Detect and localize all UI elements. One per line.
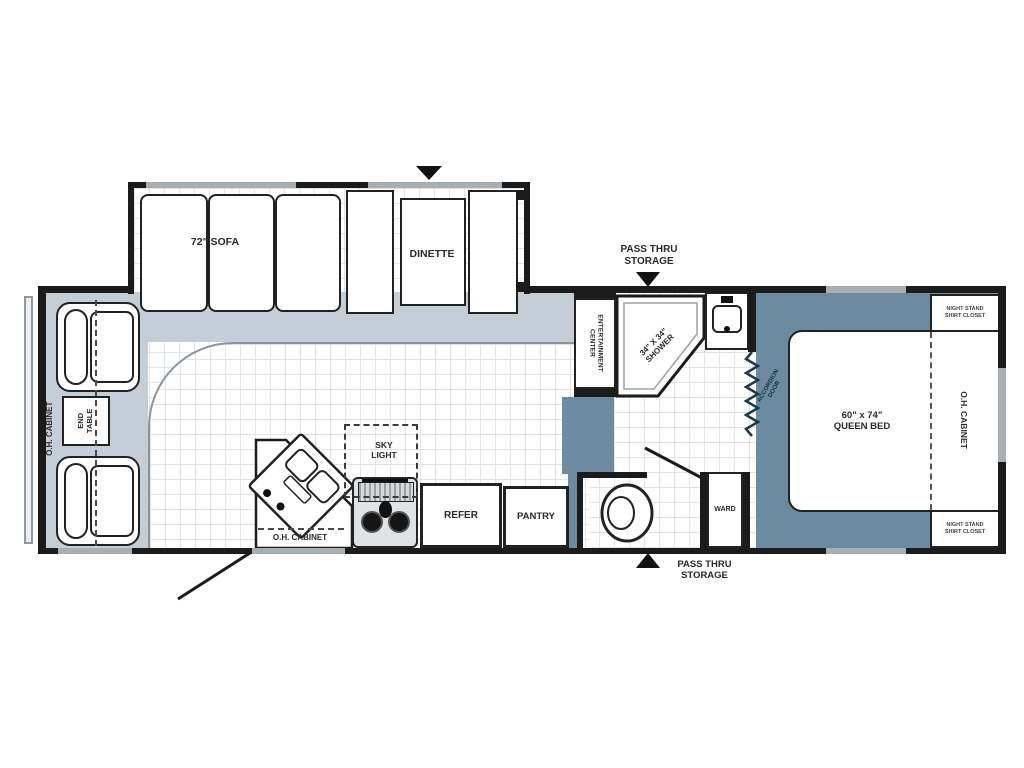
window-bedroom-bottom <box>826 548 906 554</box>
vanity-drain <box>724 326 730 332</box>
wall-ward-left <box>700 472 707 548</box>
recliner-chair <box>56 456 140 546</box>
wall-dinette-nub <box>516 282 526 292</box>
sofa-cushion <box>275 194 341 312</box>
oh-cabinet-dashline <box>258 528 344 530</box>
wall-top-left <box>38 286 134 293</box>
wall-ward-right <box>743 472 750 548</box>
ward-label: WARD <box>714 506 735 514</box>
pantry-label: PANTRY <box>517 511 555 522</box>
floorplan-canvas: REFER PANTRY WARD 60" x 74" QUEEN BED NI… <box>0 0 1024 768</box>
chair-slide-dashline <box>95 300 97 546</box>
stove-burner <box>388 511 410 533</box>
bath-door-leaf <box>645 448 702 478</box>
accordion-door-zigzag <box>746 352 758 436</box>
dinette-label: DINETTE <box>382 248 482 260</box>
refrigerator: REFER <box>420 483 502 548</box>
entertainment-center-label: ENTERTAINMENT CENTER <box>587 296 603 391</box>
window-dinette <box>368 182 502 188</box>
pass-thru-arrow-top <box>636 272 660 287</box>
window-chairs <box>58 548 132 554</box>
window-bedroom-top <box>826 286 906 293</box>
recliner-chair <box>56 302 140 392</box>
queen-bed: 60" x 74" QUEEN BED <box>788 330 936 512</box>
night-stand: NIGHT STAND SHIRT CLOSET <box>930 294 1000 332</box>
window-right-wall <box>998 368 1006 462</box>
wall-bottom-b <box>345 548 1005 554</box>
oh-cabinet-left-label: O.H. CABINET <box>45 381 54 476</box>
sky-light-label: SKY LIGHT <box>356 440 412 460</box>
entry-door-opening <box>252 548 345 554</box>
wall-vanity-right <box>748 290 756 352</box>
wardrobe: WARD <box>707 472 743 548</box>
sofa-cushion <box>208 194 275 312</box>
bath-vanity <box>705 292 749 350</box>
wall-slide-left <box>128 182 134 294</box>
sofa-label: 72" SOFA <box>150 236 280 248</box>
toilet-bowl <box>602 485 652 541</box>
oh-cabinet-kitchen-label: O.H. CABINET <box>246 533 354 542</box>
chair-back <box>64 463 88 539</box>
pass-thru-bottom-label: PASS THRU STORAGE <box>647 559 762 581</box>
chair-back <box>64 309 88 385</box>
end-table-label: END TABLE <box>77 401 95 441</box>
refer-label: REFER <box>444 510 478 522</box>
vanity-faucet <box>721 296 733 303</box>
wall-toilet-left <box>577 472 583 548</box>
sofa-cushion <box>140 194 208 312</box>
wall-dinette-nub <box>516 190 526 200</box>
wall-toilet-top <box>577 472 647 478</box>
roof-vent-marker <box>416 166 442 180</box>
night-stand-label: NIGHT STAND SHIRT CLOSET <box>945 522 985 535</box>
stove-center-burner <box>379 501 392 518</box>
window-sofa <box>146 182 296 188</box>
oh-cabinet-right-label: O.H. CABINET <box>959 370 969 470</box>
sky-light <box>344 424 418 498</box>
night-stand: NIGHT STAND SHIRT CLOSET <box>930 510 1000 548</box>
pantry: PANTRY <box>503 486 569 548</box>
entry-door-leaf <box>178 553 250 599</box>
queen-bed-label: 60" x 74" QUEEN BED <box>834 410 890 432</box>
night-stand-label: NIGHT STAND SHIRT CLOSET <box>945 306 985 319</box>
pass-thru-top-label: PASS THRU STORAGE <box>589 244 709 268</box>
front-bumper <box>24 296 33 544</box>
